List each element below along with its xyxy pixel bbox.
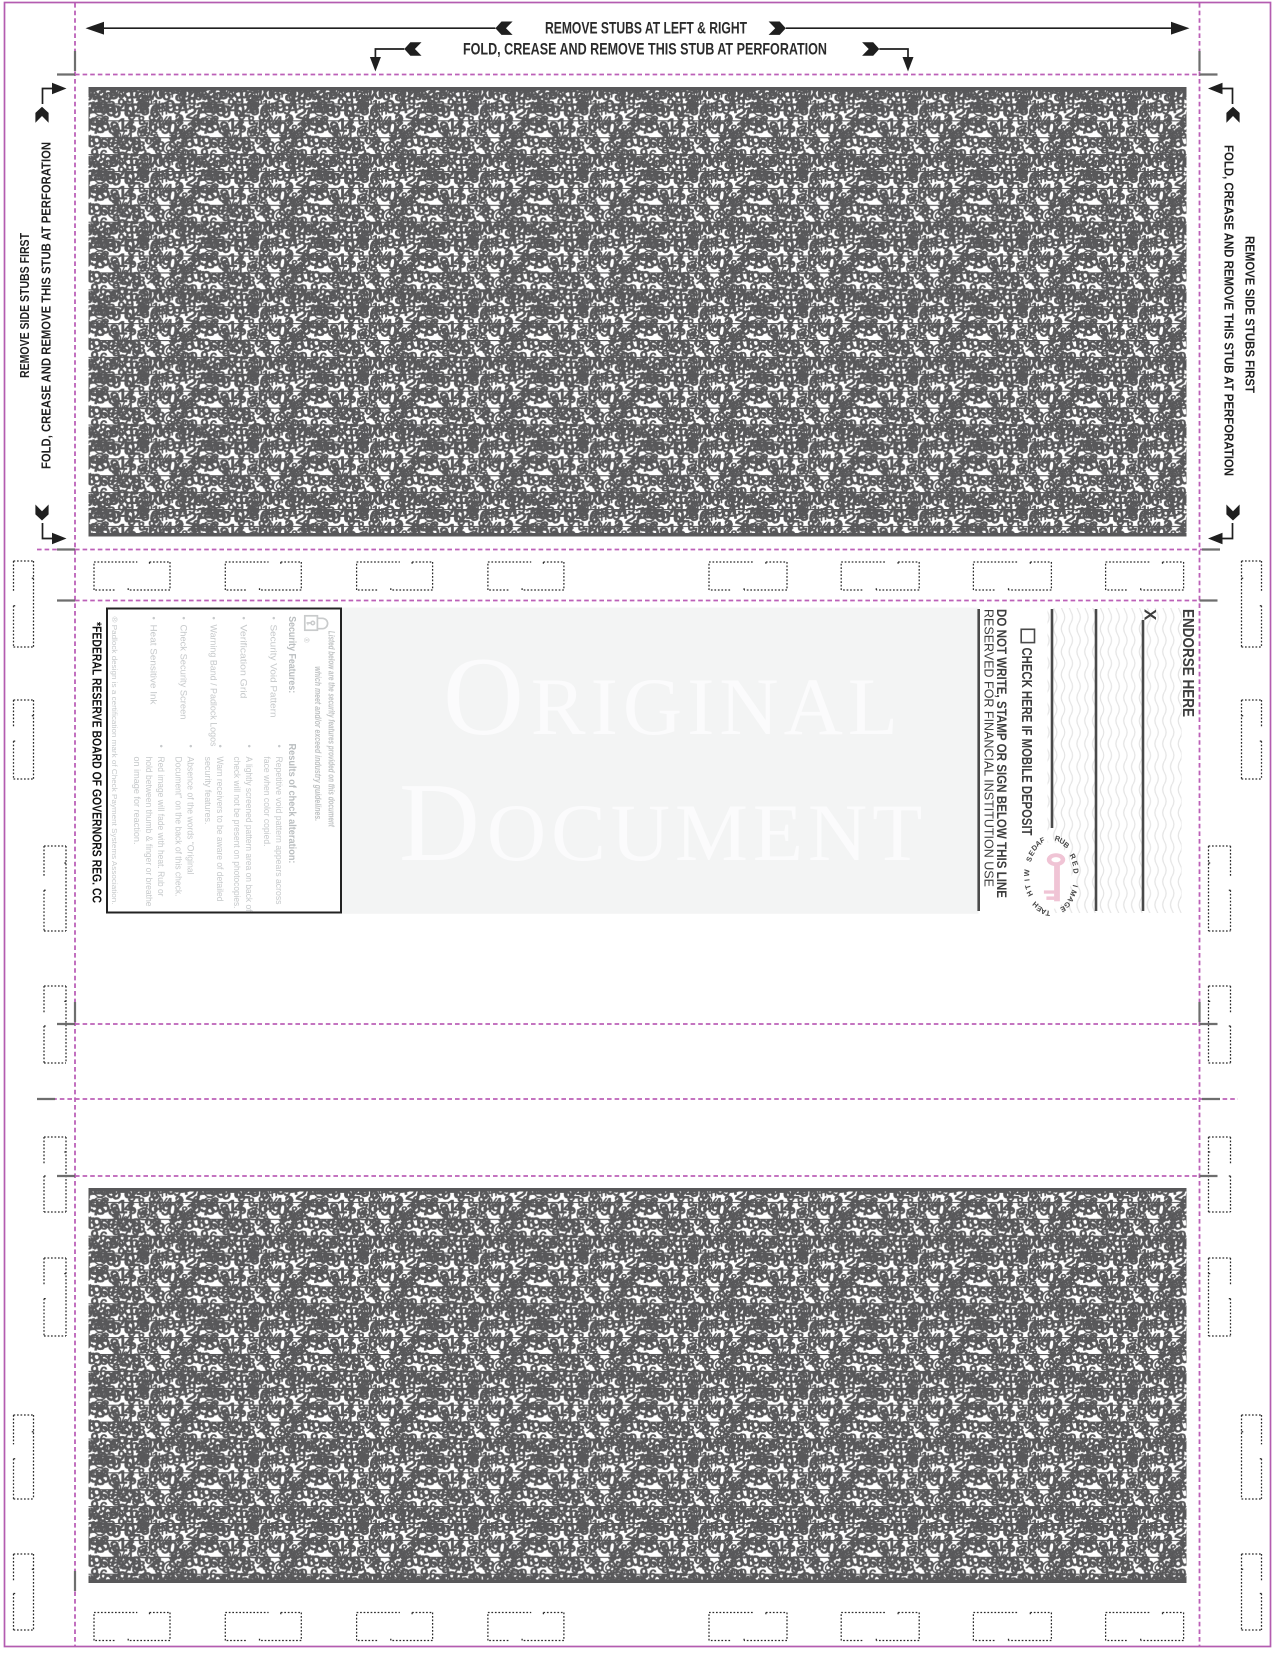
svg-text:which meet and/or exceed indus: which meet and/or exceed industry guidel… (312, 666, 323, 821)
svg-text:•: • (244, 745, 255, 748)
svg-text:FOLD, CREASE AND REMOVE THIS S: FOLD, CREASE AND REMOVE THIS STUB AT PER… (463, 39, 827, 58)
svg-text:check will not be present on p: check will not be present on photocopies… (232, 757, 243, 909)
svg-text:REMOVE SIDE STUBS FIRST: REMOVE SIDE STUBS FIRST (17, 233, 32, 378)
svg-text:X: X (1141, 609, 1160, 621)
svg-text:Red image will fade with heat.: Red image will fade with heat. Rub or (156, 757, 167, 897)
svg-text:•: • (274, 745, 285, 748)
svg-text:Repetitive void pattern appear: Repetitive void pattern appears across (274, 757, 285, 905)
svg-text:Security Void Pattern: Security Void Pattern (269, 625, 280, 718)
svg-text:•: • (215, 745, 226, 748)
svg-text:® Padlock design is a certific: ® Padlock design is a certification mark… (110, 617, 119, 905)
svg-text:D: D (1071, 868, 1081, 874)
svg-text:•: • (149, 617, 160, 620)
svg-text:Security Features:: Security Features: (286, 616, 297, 693)
svg-text:Document” on the back of this: Document” on the back of this check. (174, 757, 185, 897)
svg-text:A lightly screened pattern are: A lightly screened pattern area on back … (244, 757, 255, 912)
svg-text:®: ® (302, 638, 310, 644)
svg-text:security features.: security features. (203, 757, 214, 825)
svg-text:•: • (269, 617, 280, 620)
svg-text:•: • (156, 745, 167, 748)
svg-text:Listed below are the security: Listed below are the security features p… (326, 631, 337, 828)
svg-text:RESERVED FOR FINANCIAL INSTITU: RESERVED FOR FINANCIAL INSTITUTION USE (982, 609, 996, 887)
svg-text:FOLD, CREASE AND REMOVE THIS S: FOLD, CREASE AND REMOVE THIS STUB AT PER… (39, 142, 54, 469)
svg-text:Results of check alteration:: Results of check alteration: (286, 744, 297, 864)
svg-text:•: • (239, 617, 250, 620)
svg-text:•: • (179, 617, 190, 620)
svg-text:*FEDERAL RESERVE BOARD OF GOVE: *FEDERAL RESERVE BOARD OF GOVERNORS REG.… (90, 622, 104, 903)
svg-text:Absence of the words “Original: Absence of the words “Original (186, 757, 197, 875)
svg-text:on image for reaction.: on image for reaction. (132, 757, 143, 845)
svg-text:Verification Grid: Verification Grid (239, 625, 250, 699)
svg-text:Heat Sensitive Ink: Heat Sensitive Ink (149, 625, 160, 705)
svg-text:ENDORSE HERE: ENDORSE HERE (1179, 609, 1196, 717)
svg-text:face when color copied.: face when color copied. (262, 757, 273, 847)
svg-text:Warning Band / Padlock Logos: Warning Band / Padlock Logos (209, 625, 220, 747)
svg-text:REMOVE STUBS AT LEFT & RIGHT: REMOVE STUBS AT LEFT & RIGHT (545, 19, 747, 38)
svg-text:Check Security Screen: Check Security Screen (179, 625, 190, 720)
svg-text:REMOVE SIDE STUBS FIRST: REMOVE SIDE STUBS FIRST (1243, 236, 1258, 393)
svg-text:CHECK HERE IF MOBILE DEPOSIT: CHECK HERE IF MOBILE DEPOSIT (1018, 648, 1035, 836)
svg-text:FOLD, CREASE AND REMOVE THIS S: FOLD, CREASE AND REMOVE THIS STUB AT PER… (1222, 145, 1237, 476)
svg-text:•: • (209, 617, 220, 620)
svg-text:•: • (186, 745, 197, 748)
svg-text:Warn receivers to be aware of: Warn receivers to be aware of detailed (215, 757, 226, 902)
svg-text:hold between thumb & finger or: hold between thumb & finger or breathe (144, 757, 155, 907)
svg-text:W: W (1022, 869, 1031, 877)
